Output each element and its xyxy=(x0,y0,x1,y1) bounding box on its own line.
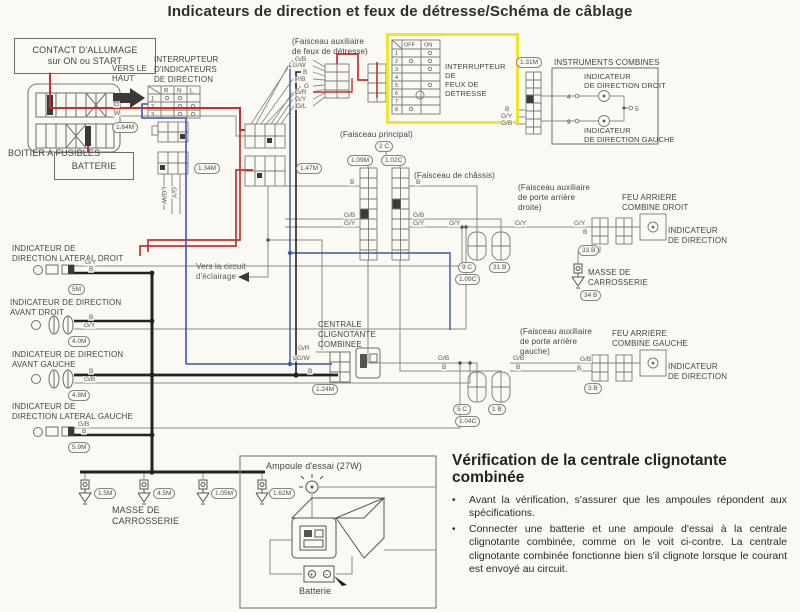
connector-id: 1.09M xyxy=(347,155,373,166)
wire-label: LG/W xyxy=(292,355,311,362)
flasher-unit-label: CENTRALE CLIGNOTANTE COMBINEE xyxy=(318,320,376,349)
wire-label: G/Y xyxy=(294,96,307,103)
wire-label: G/R xyxy=(297,345,311,352)
connector-id: 1 B xyxy=(488,404,506,415)
indicator-right-label: INDICATEUR DE DIRECTION DROIT xyxy=(584,72,666,90)
svg-text:N: N xyxy=(177,89,181,95)
wire-label: G/B xyxy=(512,355,525,362)
wire-label: G/B xyxy=(412,212,425,219)
connector-id: 1.64M xyxy=(112,122,138,133)
wire-label: G/Y xyxy=(83,322,96,329)
connector-id: 1.05M xyxy=(211,488,237,499)
rear-right-indicator-label: INDICATEUR DE DIRECTION xyxy=(668,226,727,246)
manual-page: R N L 1 2 3 xyxy=(0,0,800,612)
connector-id: 1.09C xyxy=(455,274,480,285)
wire-label: B xyxy=(349,179,355,186)
wire-label: G/B xyxy=(83,376,96,383)
rear-left-lamp-label: FEU ARRIERE COMBINE GAUCHE xyxy=(612,329,688,349)
main-harness-label: (Faisceau principal) xyxy=(340,130,413,140)
connector-id: 4.0M xyxy=(68,336,90,347)
wire-label: P/B xyxy=(294,76,306,83)
connector-id: 1.04C xyxy=(455,416,480,427)
indicator-left-label: INDICATEUR DE DIRECTION GAUCHE xyxy=(584,126,675,144)
wire-label: LG/W xyxy=(288,62,307,69)
wire-label: G/Y xyxy=(84,259,97,266)
wire-label: G/Y xyxy=(573,220,586,227)
chassis-connector-strips xyxy=(360,168,409,260)
front-left-indicator-label: INDICATEUR DE DIRECTION AVANT GAUCHE xyxy=(12,350,123,370)
instruments-cluster-label: INSTRUMENTS COMBINES xyxy=(554,58,660,68)
test-lamp-illustration xyxy=(240,456,436,608)
wire-label: B xyxy=(88,266,94,273)
connector-id: 3 B xyxy=(584,383,602,394)
flasher-unit-connector xyxy=(330,348,380,382)
wire-label: G/R xyxy=(294,89,308,96)
wire-label: G/B xyxy=(437,355,450,362)
verification-bullet: • Connecter une batterie et une ampoule … xyxy=(452,523,787,576)
wire-label: G xyxy=(113,101,120,108)
wire-label: G/B xyxy=(343,212,356,219)
svg-text:−: − xyxy=(325,571,329,578)
wire-label: B xyxy=(504,106,510,113)
bullet-icon: • xyxy=(452,523,469,576)
connector-id: 4.5M xyxy=(153,488,175,499)
wire-label: LG/W xyxy=(160,186,167,205)
wire-label: B xyxy=(307,368,313,375)
connector-id: 1.02C xyxy=(381,155,406,166)
rear-right-harness-label: (Faisceau auxiliaire de porte arrière dr… xyxy=(518,183,590,212)
connector-id: 1.5M xyxy=(94,488,116,499)
connector-id: 4.8M xyxy=(68,390,90,401)
body-ground-bottom-label: MASSE DE CARROSSERIE xyxy=(112,505,179,527)
verification-heading: Vérification de la centrale clignotante … xyxy=(452,452,787,487)
verification-bullet-text: Connecter une batterie et une ampoule d'… xyxy=(469,523,787,576)
connector-id: 1.62M xyxy=(269,488,295,499)
connector-id: 31 B xyxy=(489,262,510,273)
wire-label: B xyxy=(441,364,447,371)
wire-label: B xyxy=(302,69,308,76)
wire-label: B xyxy=(81,428,87,435)
turn-signal-switch-label: INTERRUPTEUR D'INDICATEURS DE DIRECTION xyxy=(154,55,218,84)
wire-label: G/L xyxy=(295,103,307,110)
fuse-box-label: BOITIER A FUSIBLES xyxy=(8,148,100,159)
fuse-box xyxy=(28,84,120,152)
wire-label: B xyxy=(515,364,521,371)
rear-left-indicator-label: INDICATEUR DE DIRECTION xyxy=(668,362,727,382)
test-bulb-label: Ampoule d'essai (27W) xyxy=(266,461,362,472)
wire-label: G/Y xyxy=(448,220,461,227)
wire-label: G/B xyxy=(77,421,90,428)
rear-right-lamp-label: FEU ARRIERE COMBINE DROIT xyxy=(622,193,688,213)
connector-id: 1.47M xyxy=(296,163,322,174)
rear-left-harness-label: (Faisceau auxiliaire de porte arrière ga… xyxy=(520,327,592,356)
connector-id: 1.31M xyxy=(516,57,542,68)
connector-id: 9 C xyxy=(458,262,476,273)
to-lighting-circuit-label: Vers la circuit d'éclairage xyxy=(196,262,246,282)
connector-id: 34 B xyxy=(580,290,601,301)
verification-bullet-text: Avant la vérification, s'assurer que les… xyxy=(469,494,787,520)
wire-label: G/B xyxy=(579,356,592,363)
bullet-icon: • xyxy=(452,494,469,520)
connector-id: 1.34M xyxy=(194,163,220,174)
lateral-left-indicator-label: INDICATEUR DE DIRECTION LATERAL GAUCHE xyxy=(12,402,133,422)
svg-text:5: 5 xyxy=(635,106,639,113)
connector-id: 5M xyxy=(68,284,85,295)
wire-label: B xyxy=(88,314,94,321)
connector-id: 5 C xyxy=(453,404,471,415)
battery-terminal-signs: + − xyxy=(310,571,329,578)
wire-label: B xyxy=(415,179,421,186)
wire-label: G/Y xyxy=(412,220,425,227)
svg-text:9: 9 xyxy=(567,119,571,126)
svg-text:4: 4 xyxy=(567,94,571,101)
svg-text:+: + xyxy=(310,572,314,579)
wire-label: G/Y xyxy=(343,220,356,227)
connector-id: 2 C xyxy=(375,141,393,152)
direction-switch-connectors xyxy=(152,122,188,174)
vers-le-haut-label: VERS LE HAUT xyxy=(112,64,147,84)
lateral-right-indicator-label: INDICATEUR DE DIRECTION LATERAL DROIT xyxy=(12,244,123,264)
page-title: Indicateurs de direction et feux de détr… xyxy=(130,3,670,20)
battery-label: BATTERIE xyxy=(72,161,117,172)
rear-left-connectors xyxy=(468,350,666,402)
test-battery-label: Batterie xyxy=(299,586,331,597)
wire-label: G/Y xyxy=(500,113,513,120)
connector-id: 5.9M xyxy=(68,442,90,453)
wire-label: B xyxy=(88,368,94,375)
connector-id: 33 B xyxy=(578,245,599,256)
wire-label: G/B xyxy=(500,120,513,127)
direction-switch-table-text: R N L 1 2 3 xyxy=(151,89,194,119)
verification-section: Vérification de la centrale clignotante … xyxy=(452,452,787,579)
wire-label: G/Y xyxy=(170,186,177,199)
svg-text:R: R xyxy=(164,89,169,95)
wire-label: G/Y xyxy=(514,220,527,227)
chassis-harness-label: (Faisceau de châssis) xyxy=(414,171,495,181)
rear-right-connectors xyxy=(468,214,666,260)
front-right-indicator-label: INDICATEUR DE DIRECTION AVANT DROIT xyxy=(10,298,121,318)
hazard-switch-label: INTERRUPTEUR DE FEUX DE DETRESSE xyxy=(445,62,513,99)
wire-label: B xyxy=(582,229,588,236)
wire-label: B xyxy=(576,365,582,372)
wire-label: W xyxy=(113,110,121,117)
verification-bullet: • Avant la vérification, s'assurer que l… xyxy=(452,494,787,520)
connector-id: 1.24M xyxy=(312,384,338,395)
body-ground-right-label: MASSE DE CARROSSERIE xyxy=(588,268,648,288)
hazard-harness-label: (Faisceau auxiliaire de feux de détresse… xyxy=(292,37,368,57)
